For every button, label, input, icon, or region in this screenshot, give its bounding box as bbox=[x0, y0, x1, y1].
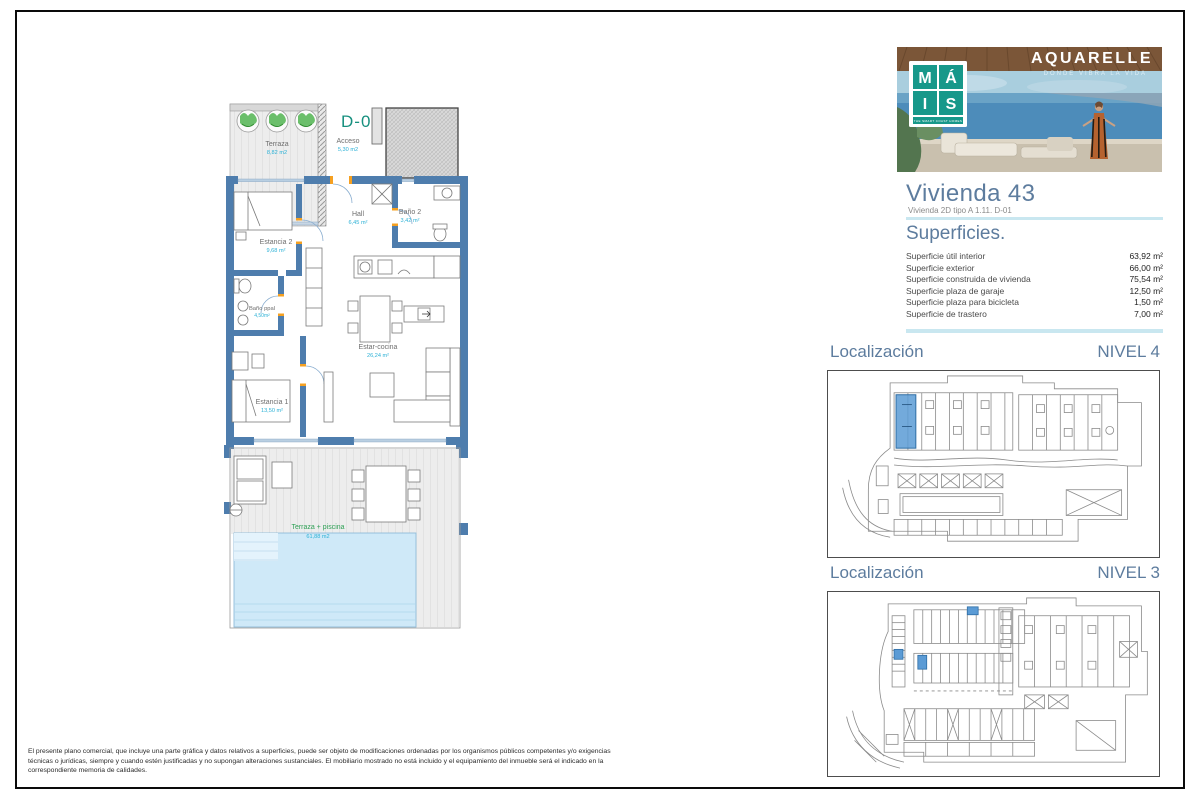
room-area-hall: 6,45 m² bbox=[349, 220, 368, 226]
storage-highlight-nivel3 bbox=[967, 607, 978, 615]
room-area-estancia1: 13,50 m² bbox=[261, 408, 283, 414]
room-area-acceso: 5,30 m2 bbox=[338, 147, 358, 153]
localizacion-label: Localización bbox=[830, 563, 924, 583]
parking-highlight-nivel3 bbox=[918, 655, 927, 669]
floorplan: Terraza 8,82 m2 D-01 Acceso 5,30 m2 bbox=[220, 96, 472, 636]
page-title: Vivienda 43 bbox=[906, 180, 1035, 208]
superficies-heading: Superficies. bbox=[906, 223, 1005, 245]
table-row: Superficie plaza para bicicleta1,50 m² bbox=[906, 297, 1163, 309]
row-label: Superficie útil interior bbox=[906, 251, 985, 263]
furniture bbox=[232, 184, 460, 426]
room-label-banoppal: Baño ppal bbox=[249, 306, 275, 312]
mais-logo: M Á I S THE SMART COAST HOMES bbox=[909, 61, 967, 127]
plant-icon bbox=[237, 110, 259, 132]
room-area-banoppal: 4,50m² bbox=[254, 313, 270, 319]
nivel3-label: NIVEL 3 bbox=[1097, 563, 1160, 583]
logo-letter-a: Á bbox=[945, 68, 957, 87]
row-value: 66,00 m² bbox=[1129, 263, 1163, 275]
logo-letter-s: S bbox=[946, 96, 957, 113]
localizacion-label: Localización bbox=[830, 342, 924, 362]
divider bbox=[906, 217, 1163, 220]
banner-subtitle: DONDE VIBRA LA VIDA bbox=[1044, 71, 1147, 77]
table-row: Superficie útil interior63,92 m² bbox=[906, 251, 1163, 263]
map-nivel3 bbox=[827, 591, 1160, 777]
room-area-estarcocina: 26,24 m² bbox=[367, 353, 389, 359]
row-label: Superficie construida de vivienda bbox=[906, 274, 1031, 286]
table-row: Superficie plaza de garaje12,50 m² bbox=[906, 286, 1163, 298]
room-area-terraza: 8,82 m2 bbox=[267, 150, 287, 156]
page-subtitle: Vivienda 2D tipo A 1.11. D-01 bbox=[908, 206, 1012, 215]
stairwell bbox=[386, 108, 458, 178]
duct bbox=[372, 108, 382, 144]
table-row: Superficie exterior66,00 m² bbox=[906, 263, 1163, 275]
map-nivel4 bbox=[827, 370, 1160, 558]
room-label-terraza: Terraza bbox=[265, 141, 288, 148]
room-label-estarcocina: Estar-cocina bbox=[359, 344, 398, 351]
room-label-bano2: Baño 2 bbox=[399, 209, 421, 216]
nivel4-label: NIVEL 4 bbox=[1097, 342, 1160, 362]
plant-icon bbox=[266, 110, 288, 132]
room-area-estancia2: 9,68 m² bbox=[267, 248, 286, 254]
table-row: Superficie construida de vivienda75,54 m… bbox=[906, 274, 1163, 286]
banner-image: AQUARELLE DONDE VIBRA LA VIDA M Á I S TH… bbox=[897, 47, 1162, 172]
row-label: Superficie plaza para bicicleta bbox=[906, 297, 1019, 309]
room-label-estancia2: Estancia 2 bbox=[260, 239, 293, 246]
terrace-pool: Terraza + piscina 61,88 m2 bbox=[230, 448, 460, 628]
room-area-bano2: 3,42 m² bbox=[401, 218, 420, 224]
room-label-hall: Hall bbox=[352, 211, 365, 218]
superficies-table: Superficie útil interior63,92 m² Superfi… bbox=[906, 251, 1163, 320]
row-value: 12,50 m² bbox=[1129, 286, 1163, 298]
plant-icon bbox=[295, 110, 317, 132]
room-label-estancia1: Estancia 1 bbox=[256, 399, 289, 406]
floorplan-drawing: Terraza 8,82 m2 D-01 Acceso 5,30 m2 bbox=[220, 96, 472, 636]
localizacion-nivel3-header: Localización NIVEL 3 bbox=[830, 563, 1160, 583]
disclaimer-text: El presente plano comercial, que incluye… bbox=[28, 747, 624, 776]
divider bbox=[906, 329, 1163, 333]
room-area-terraza-piscina: 61,88 m2 bbox=[306, 534, 329, 540]
row-value: 75,54 m² bbox=[1129, 274, 1163, 286]
banner-title: AQUARELLE bbox=[1031, 50, 1153, 67]
brand-banner: AQUARELLE DONDE VIBRA LA VIDA M Á I S TH… bbox=[897, 47, 1162, 172]
room-label-acceso: Acceso bbox=[337, 138, 360, 145]
row-label: Superficie plaza de garaje bbox=[906, 286, 1004, 298]
row-label: Superficie de trastero bbox=[906, 309, 987, 321]
unit-highlight-nivel4 bbox=[896, 395, 916, 448]
logo-tagline: THE SMART COAST HOMES bbox=[914, 119, 963, 123]
row-label: Superficie exterior bbox=[906, 263, 975, 275]
row-value: 7,00 m² bbox=[1134, 309, 1163, 321]
room-label-terraza-piscina: Terraza + piscina bbox=[291, 524, 344, 531]
logo-letter-i: I bbox=[923, 96, 927, 113]
bike-highlight-nivel3 bbox=[894, 649, 903, 659]
plan-sheet: Terraza 8,82 m2 D-01 Acceso 5,30 m2 bbox=[0, 0, 1200, 800]
row-value: 1,50 m² bbox=[1134, 297, 1163, 309]
localizacion-nivel4-header: Localización NIVEL 4 bbox=[830, 342, 1160, 362]
row-value: 63,92 m² bbox=[1129, 251, 1163, 263]
table-row: Superficie de trastero7,00 m² bbox=[906, 309, 1163, 321]
logo-letter-m: M bbox=[918, 70, 931, 87]
